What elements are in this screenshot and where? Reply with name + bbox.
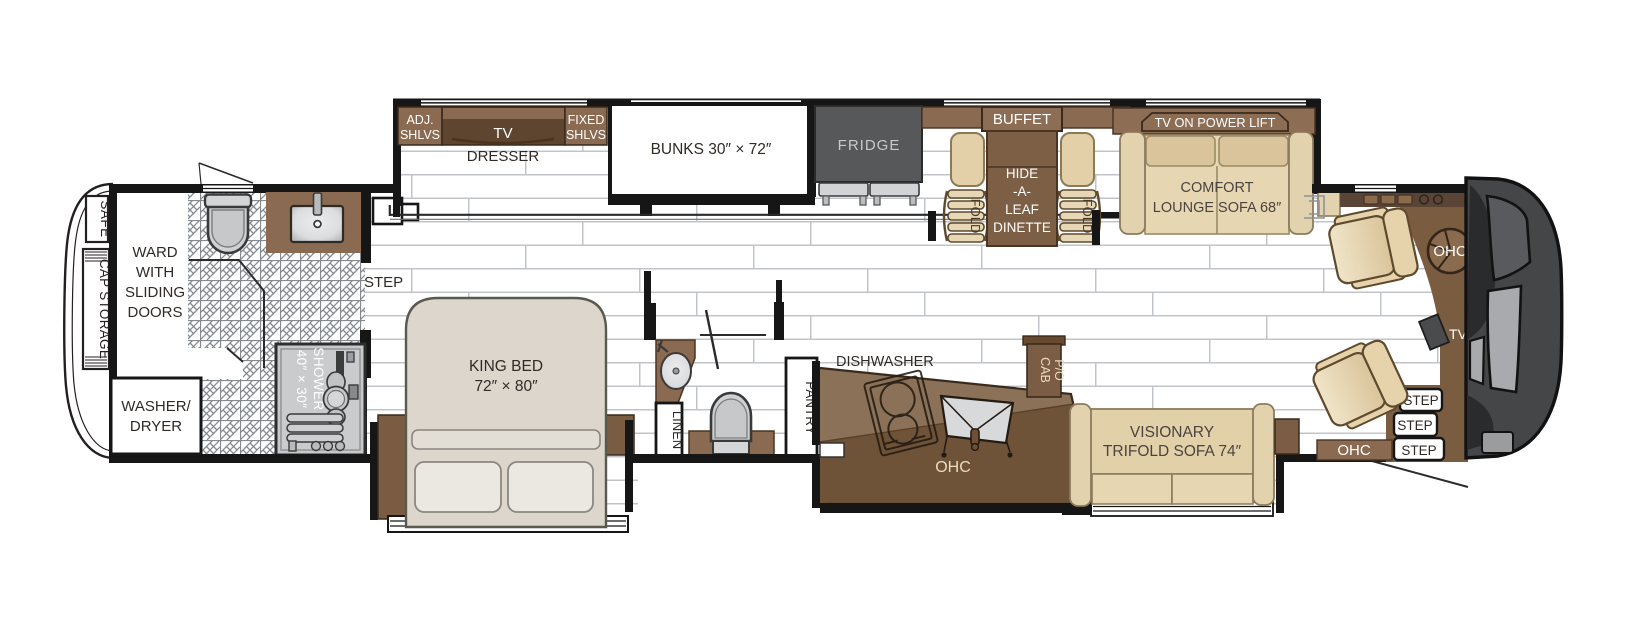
svg-text:DRYER: DRYER <box>130 418 182 435</box>
svg-text:DISHWASHER: DISHWASHER <box>836 354 934 370</box>
svg-text:OHC: OHC <box>1433 243 1467 260</box>
svg-text:LOUNGE SOFA 68″: LOUNGE SOFA 68″ <box>1153 200 1281 216</box>
svg-text:ADJ.: ADJ. <box>406 113 433 127</box>
svg-text:DRESSER: DRESSER <box>467 148 540 165</box>
svg-text:WARD: WARD <box>132 244 177 261</box>
svg-text:TV: TV <box>493 125 512 142</box>
svg-text:STEP: STEP <box>1401 443 1436 458</box>
svg-text:BUFFET: BUFFET <box>993 111 1051 128</box>
svg-text:40″ × 30″: 40″ × 30″ <box>294 350 309 409</box>
svg-text:FIXED: FIXED <box>568 113 605 127</box>
svg-text:WASHER/: WASHER/ <box>121 398 191 415</box>
svg-text:BUNKS 30″ × 72″: BUNKS 30″ × 72″ <box>651 141 772 158</box>
svg-text:FRIDGE: FRIDGE <box>838 137 901 154</box>
svg-text:SHLVS: SHLVS <box>400 128 440 142</box>
svg-text:P/O: P/O <box>1052 359 1066 381</box>
svg-text:COMFORT: COMFORT <box>1180 180 1253 196</box>
svg-text:LINEN: LINEN <box>670 411 685 449</box>
svg-text:OHC: OHC <box>935 459 971 476</box>
svg-text:DOORS: DOORS <box>127 304 182 321</box>
svg-text:-A-: -A- <box>1013 184 1031 199</box>
svg-text:STEP: STEP <box>1397 418 1432 433</box>
svg-text:72″ × 80″: 72″ × 80″ <box>474 378 538 395</box>
svg-text:LEAF: LEAF <box>1005 202 1039 217</box>
svg-text:TV ON POWER LIFT: TV ON POWER LIFT <box>1155 115 1276 130</box>
svg-text:KING BED: KING BED <box>469 358 543 375</box>
svg-text:FOLD: FOLD <box>968 199 983 234</box>
svg-text:WITH: WITH <box>136 264 174 281</box>
svg-text:OHC: OHC <box>1337 442 1371 459</box>
svg-text:SLIDING: SLIDING <box>125 284 185 301</box>
svg-text:DINETTE: DINETTE <box>993 220 1051 235</box>
svg-text:CAB: CAB <box>1038 357 1052 383</box>
svg-text:SHLVS: SHLVS <box>566 128 606 142</box>
svg-text:VISIONARY: VISIONARY <box>1130 424 1214 441</box>
svg-text:TRIFOLD SOFA 74″: TRIFOLD SOFA 74″ <box>1103 443 1242 460</box>
svg-text:STEP: STEP <box>1403 393 1438 408</box>
svg-text:STEP: STEP <box>364 274 403 291</box>
svg-text:HIDE: HIDE <box>1006 166 1038 181</box>
